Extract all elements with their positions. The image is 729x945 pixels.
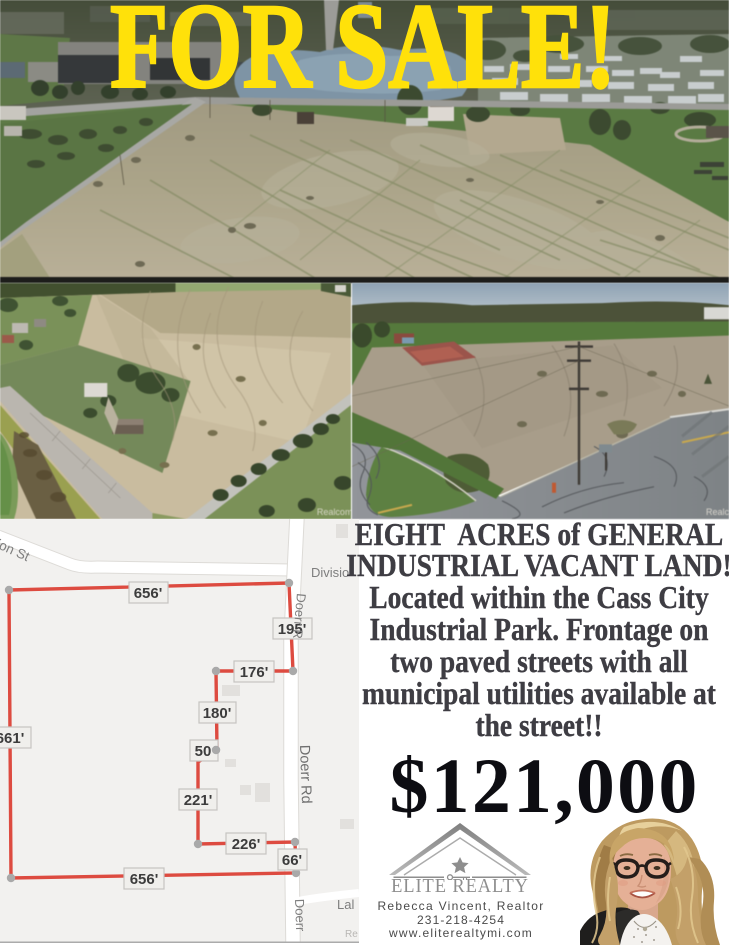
svg-text:Realcomp: Realcomp [317,507,351,517]
svg-text:661': 661' [0,730,24,747]
svg-text:656': 656' [134,585,163,602]
svg-text:221': 221' [184,792,213,809]
svg-text:50: 50 [195,743,212,760]
svg-text:656': 656' [130,871,159,888]
svg-text:Lal: Lal [337,897,354,912]
svg-text:226': 226' [232,836,261,853]
svg-text:176': 176' [240,664,269,681]
svg-text:66': 66' [282,852,302,869]
svg-text:180': 180' [203,705,232,722]
svg-text:Doerr Rd: Doerr Rd [296,745,314,804]
svg-text:Doerr: Doerr [292,899,308,933]
